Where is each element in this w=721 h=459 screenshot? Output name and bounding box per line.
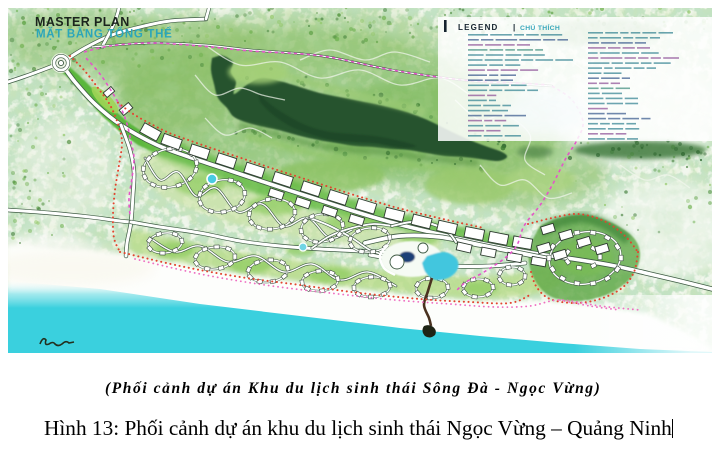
svg-text:CHÚ THÍCH: CHÚ THÍCH — [520, 23, 560, 32]
svg-text:MASTER PLAN: MASTER PLAN — [35, 15, 130, 29]
svg-text:MẶT BẰNG TỔNG THỂ: MẶT BẰNG TỔNG THỂ — [36, 28, 172, 41]
svg-text:LEGEND: LEGEND — [458, 23, 499, 32]
svg-text:|: | — [513, 23, 515, 32]
